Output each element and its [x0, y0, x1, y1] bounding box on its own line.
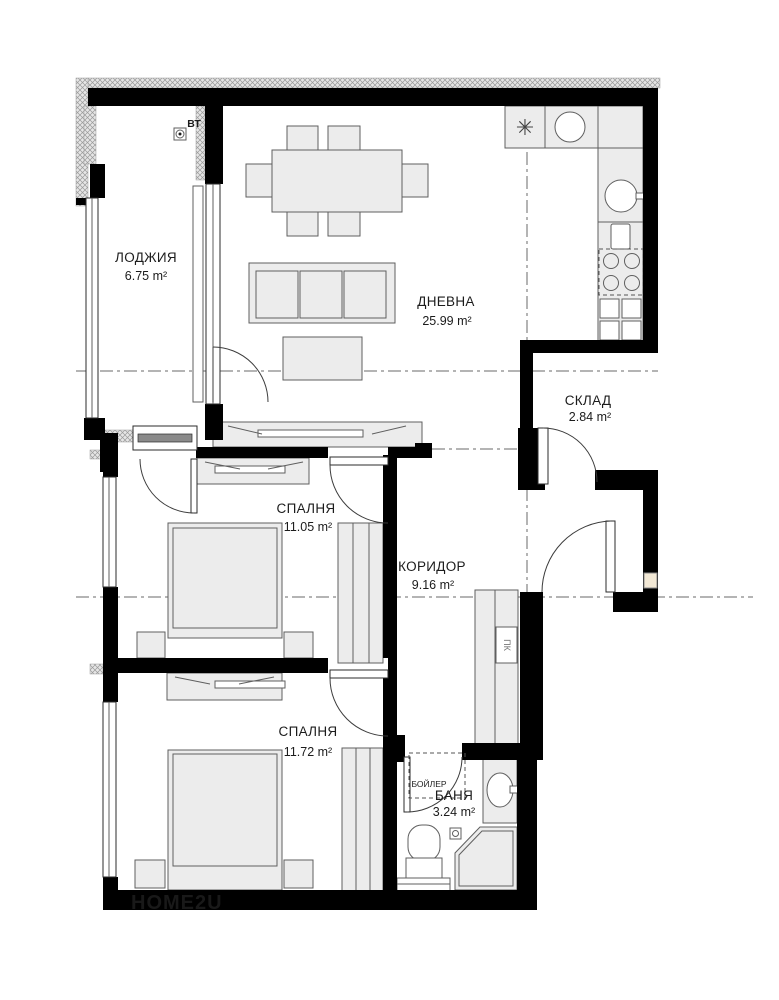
- dining-chair: [287, 210, 318, 236]
- room-area-bedroom2: 11.72 m²: [284, 745, 332, 759]
- bedroom1-door: [330, 457, 388, 523]
- bed-1: [168, 523, 282, 638]
- dining-chair: [328, 210, 360, 236]
- entry-door: [542, 521, 615, 592]
- bedroom2-window: [103, 702, 116, 877]
- washbasin: [483, 755, 519, 823]
- room-label-bedroom2: СПАЛНЯ: [279, 724, 338, 739]
- hall-cabinet-label: ПК: [502, 639, 512, 651]
- toilet: [406, 825, 442, 878]
- dining-chair: [401, 164, 428, 197]
- small-appliance: [611, 224, 630, 249]
- tv-console-living: [213, 422, 422, 447]
- room-area-storage: 2.84 m²: [569, 410, 611, 424]
- room-area-bedroom1: 11.05 m²: [284, 520, 332, 534]
- storage-door: [538, 428, 597, 484]
- dining-chair: [246, 164, 273, 197]
- floor-plan-svg: ✳: [0, 0, 779, 1000]
- vent-shaft-label: ВТ: [187, 118, 201, 130]
- wall-niche: [644, 573, 657, 588]
- room-label-bedroom1: СПАЛНЯ: [277, 501, 336, 516]
- dining-set: [246, 126, 428, 236]
- room-label-storage: СКЛАД: [565, 393, 612, 408]
- loggia-bedroom1-window: [133, 426, 197, 450]
- room-label-bathroom: БАНЯ: [435, 788, 473, 803]
- nightstand: [284, 632, 313, 658]
- bath-step: [397, 878, 450, 892]
- coffee-table: [283, 337, 362, 380]
- nightstand: [137, 632, 165, 658]
- balcony-door: [213, 347, 268, 402]
- dresser-1: [197, 458, 309, 484]
- dining-chair: [287, 126, 318, 152]
- wardrobe-2: [342, 748, 383, 891]
- sofa: [249, 263, 395, 323]
- dining-table: [272, 150, 402, 212]
- room-area-loggia: 6.75 m²: [125, 269, 167, 283]
- watermark: HOME2U: [131, 892, 223, 914]
- room-area-corridor: 9.16 m²: [412, 578, 454, 592]
- room-label-living: ДНЕВНА: [417, 294, 474, 309]
- bedroom2-door: [330, 670, 388, 736]
- shower: [455, 827, 517, 890]
- floor-drain: [450, 828, 461, 839]
- floor-plan: ✳: [0, 0, 779, 1000]
- loggia-bedroom1-door: [140, 459, 197, 513]
- bed-2: [168, 750, 282, 890]
- loggia-living-glazing: [193, 184, 220, 404]
- nightstand: [284, 860, 313, 888]
- room-area-living: 25.99 m²: [422, 314, 471, 328]
- room-label-corridor: КОРИДОР: [398, 559, 466, 574]
- hall-cabinet: ПК: [475, 590, 518, 745]
- room-area-bathroom: 3.24 m²: [433, 805, 475, 819]
- loggia-left-window: [86, 198, 98, 418]
- vent-fan-icon: ✳: [516, 115, 534, 140]
- dresser-2: [167, 673, 285, 700]
- wardrobe-1: [338, 523, 383, 663]
- dining-chair: [328, 126, 360, 152]
- room-label-loggia: ЛОДЖИЯ: [115, 250, 177, 265]
- bedroom1-window: [103, 477, 116, 587]
- kitchen-sink: [555, 112, 585, 142]
- nightstand: [135, 860, 165, 888]
